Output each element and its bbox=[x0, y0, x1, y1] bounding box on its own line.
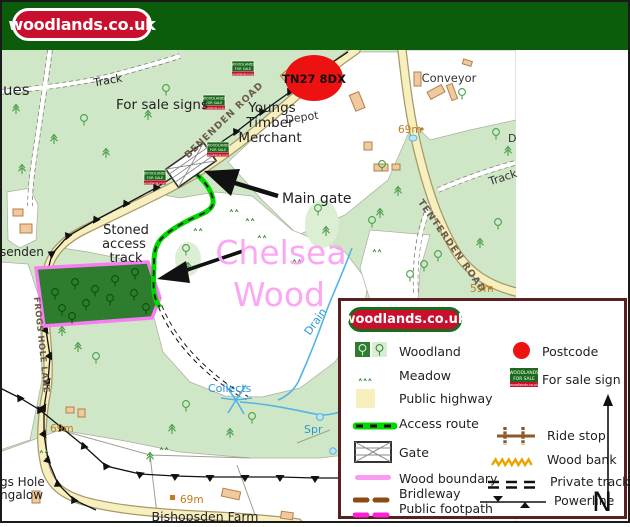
woodland-dark-icon bbox=[355, 342, 370, 357]
pond bbox=[317, 414, 324, 421]
sign-text: FOR SALE bbox=[235, 67, 252, 71]
label-stoned-2: access bbox=[102, 237, 146, 252]
legend-label-woodland: Woodland bbox=[399, 344, 461, 359]
sign-text: FOR SALE bbox=[147, 176, 164, 180]
legend-label-private-track: Private track bbox=[550, 474, 629, 489]
sign-text: WOODLANDS bbox=[510, 370, 538, 376]
spot-69-road: 69m bbox=[398, 124, 422, 136]
label-stoned-3: track bbox=[109, 251, 143, 266]
sign-text: WOODLANDS bbox=[207, 143, 230, 147]
legend-label-for-sale-sign: For sale sign bbox=[542, 372, 621, 387]
public-footpath-icon bbox=[353, 504, 395, 523]
sign-text: FOR SALE bbox=[206, 101, 223, 105]
sign-text: FOR SALE bbox=[513, 376, 535, 382]
postcode-icon bbox=[513, 342, 530, 359]
legend-label-gate: Gate bbox=[399, 445, 429, 460]
top-banner: woodlands.co.uk bbox=[0, 0, 630, 50]
postcode-label: TN27 8DX bbox=[282, 72, 346, 86]
ride-stop-icon bbox=[495, 425, 537, 451]
north-label: N bbox=[592, 487, 612, 518]
sign-text: FOR SALE bbox=[210, 148, 227, 152]
label-partial-senden: senden bbox=[0, 245, 44, 259]
label-gs-hole: gs Hole bbox=[0, 475, 45, 489]
spot-69-farm: 69m bbox=[180, 494, 204, 506]
sign-text: woodlands.co.uk bbox=[144, 181, 166, 185]
sign-text: woodlands.co.uk bbox=[207, 153, 229, 157]
sign-text: woodlands.co.uk bbox=[510, 383, 538, 387]
wood-bank-icon bbox=[490, 453, 536, 472]
sign-text: woodlands.co.uk bbox=[232, 72, 254, 76]
legend-label-bridleway: Bridleway bbox=[399, 486, 461, 501]
label-for-sale-signs: For sale signs bbox=[116, 97, 208, 113]
legend-woodlands-logo: woodlands.co.uk bbox=[348, 307, 462, 332]
sign-text: WOODLANDS bbox=[232, 62, 255, 66]
spot-69-lane: 69m bbox=[50, 423, 74, 435]
public-highway-icon bbox=[356, 389, 375, 408]
label-bishopsden: Bishopsden Farm bbox=[152, 509, 259, 523]
legend-label-public-footpath: Public footpath bbox=[399, 501, 493, 516]
legend-label-wood-boundary: Wood boundary bbox=[399, 471, 497, 486]
woodlands-logo[interactable]: woodlands.co.uk bbox=[12, 8, 152, 41]
label-youngs-3: Merchant bbox=[238, 130, 301, 146]
wood-name-line1: Chelsea bbox=[215, 233, 346, 272]
wood-parcel bbox=[36, 262, 160, 326]
legend-label-meadow: Meadow bbox=[399, 368, 451, 383]
meadow-icon bbox=[357, 369, 377, 388]
legend-label-postcode: Postcode bbox=[542, 344, 598, 359]
legend-label-access-route: Access route bbox=[399, 416, 479, 431]
access-route-icon bbox=[353, 417, 397, 436]
wood-name-line2: Wood bbox=[233, 275, 325, 314]
legend-panel: woodlands.co.uk Woodland Meadow Public h… bbox=[338, 298, 627, 519]
label-partial-ues: ues bbox=[3, 81, 30, 99]
label-stoned-1: Stoned bbox=[103, 223, 149, 238]
label-spring: Spr bbox=[304, 423, 323, 436]
label-conveyor: Conveyor bbox=[422, 71, 477, 85]
label-ngalow: ngalow bbox=[0, 488, 43, 502]
for-sale-sign-icon: WOODLANDS FOR SALE woodlands.co.uk bbox=[510, 368, 538, 392]
label-main-gate: Main gate bbox=[282, 191, 351, 207]
legend-label-public-highway: Public highway bbox=[399, 391, 493, 406]
label-partial-d: D bbox=[508, 132, 516, 145]
powerline-icon bbox=[480, 494, 546, 513]
woodland-light-icon bbox=[372, 342, 387, 357]
label-collects: Collects bbox=[208, 382, 252, 395]
legend-label-ride-stop: Ride stop bbox=[547, 428, 606, 443]
sign-text: WOODLANDS bbox=[144, 171, 167, 175]
wood-boundary-icon bbox=[355, 475, 391, 480]
gate-icon bbox=[354, 441, 392, 467]
private-track-icon bbox=[487, 475, 539, 494]
pond bbox=[330, 448, 336, 454]
